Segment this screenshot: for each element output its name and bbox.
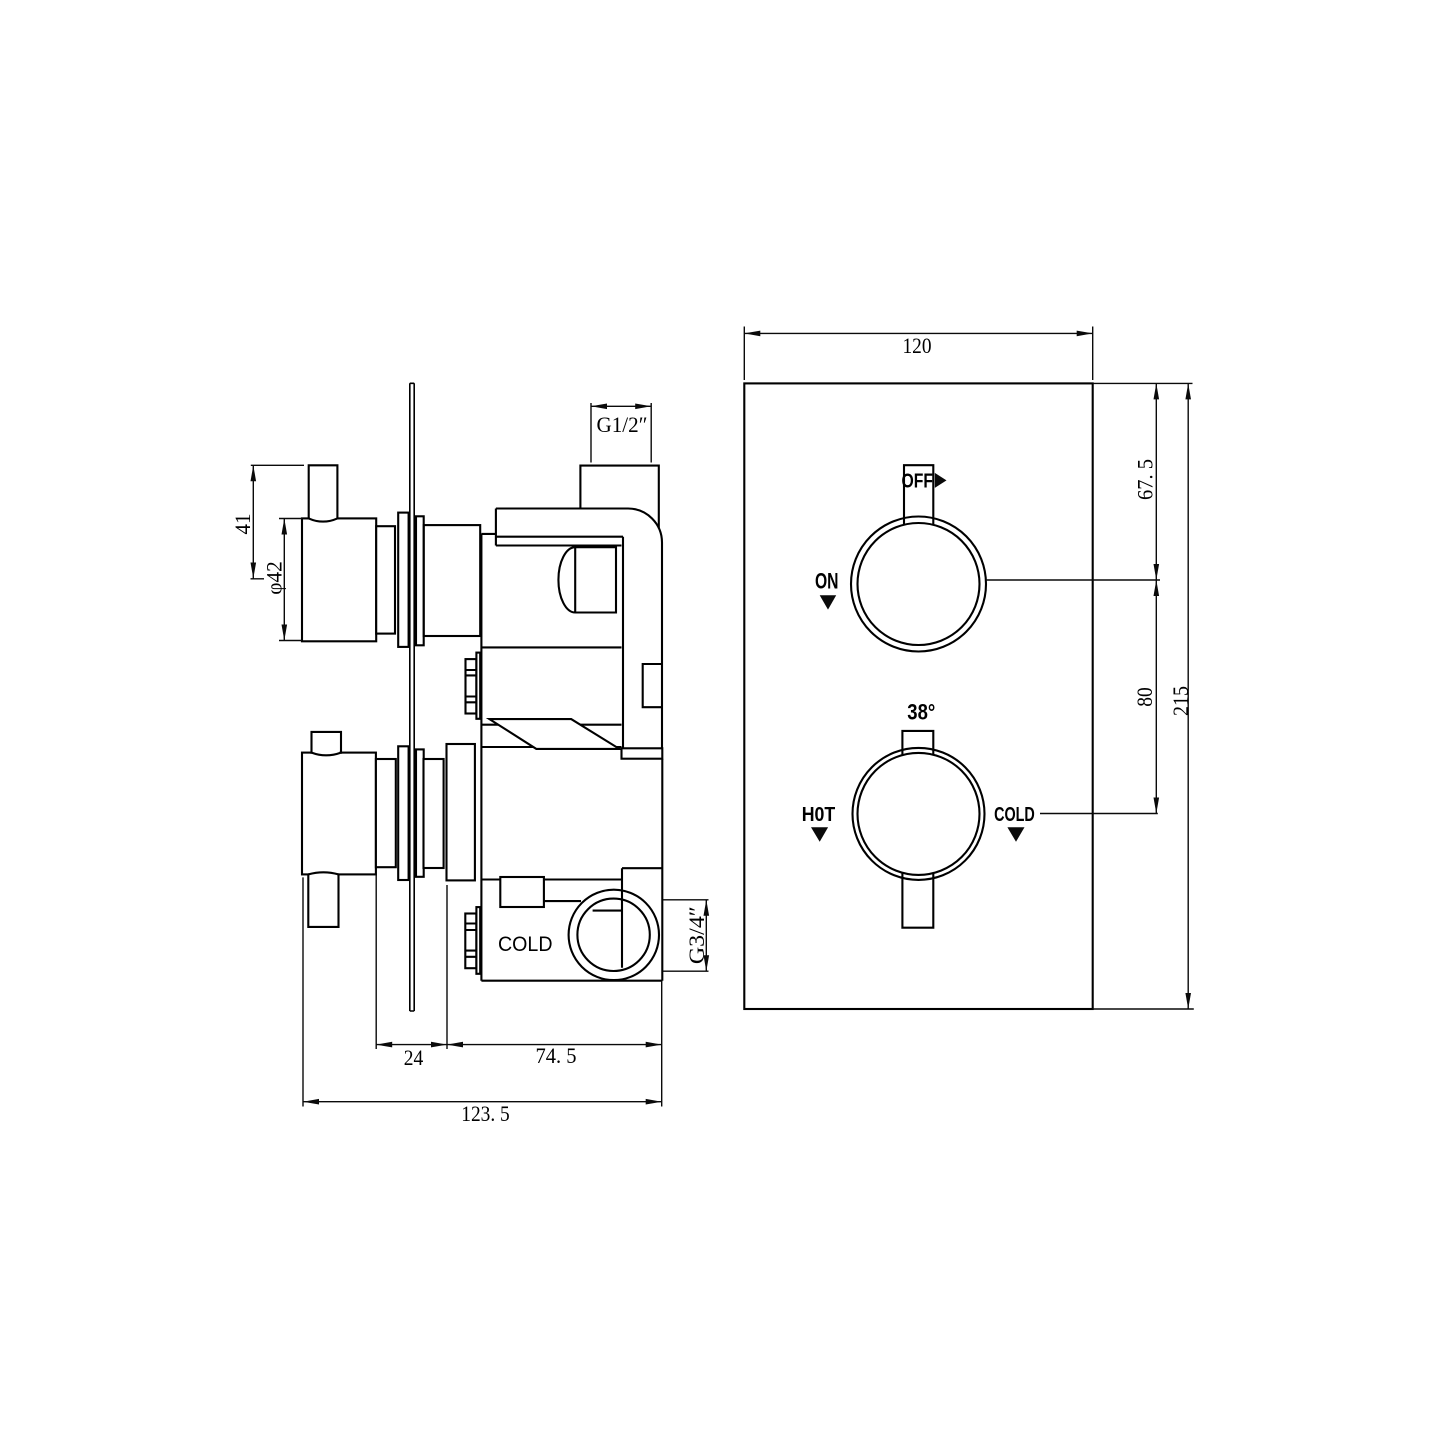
svg-text:38°: 38° [907,700,935,725]
svg-text:OFF: OFF [902,471,934,493]
svg-text:24: 24 [404,1045,424,1070]
svg-text:G1/2″: G1/2″ [597,412,648,437]
svg-text:67. 5: 67. 5 [1133,459,1158,500]
svg-text:COLD: COLD [994,804,1035,826]
svg-text:COLD: COLD [498,933,553,956]
svg-text:123. 5: 123. 5 [461,1101,510,1126]
svg-text:H0T: H0T [802,804,836,826]
svg-text:ON: ON [815,568,839,593]
svg-text:G3/4″: G3/4″ [684,906,709,964]
svg-text:120: 120 [903,333,932,358]
svg-text:80: 80 [1132,687,1157,707]
svg-text:41: 41 [230,514,255,535]
svg-text:215: 215 [1168,686,1193,716]
svg-text:74. 5: 74. 5 [536,1043,577,1068]
svg-text:φ42: φ42 [261,561,286,595]
